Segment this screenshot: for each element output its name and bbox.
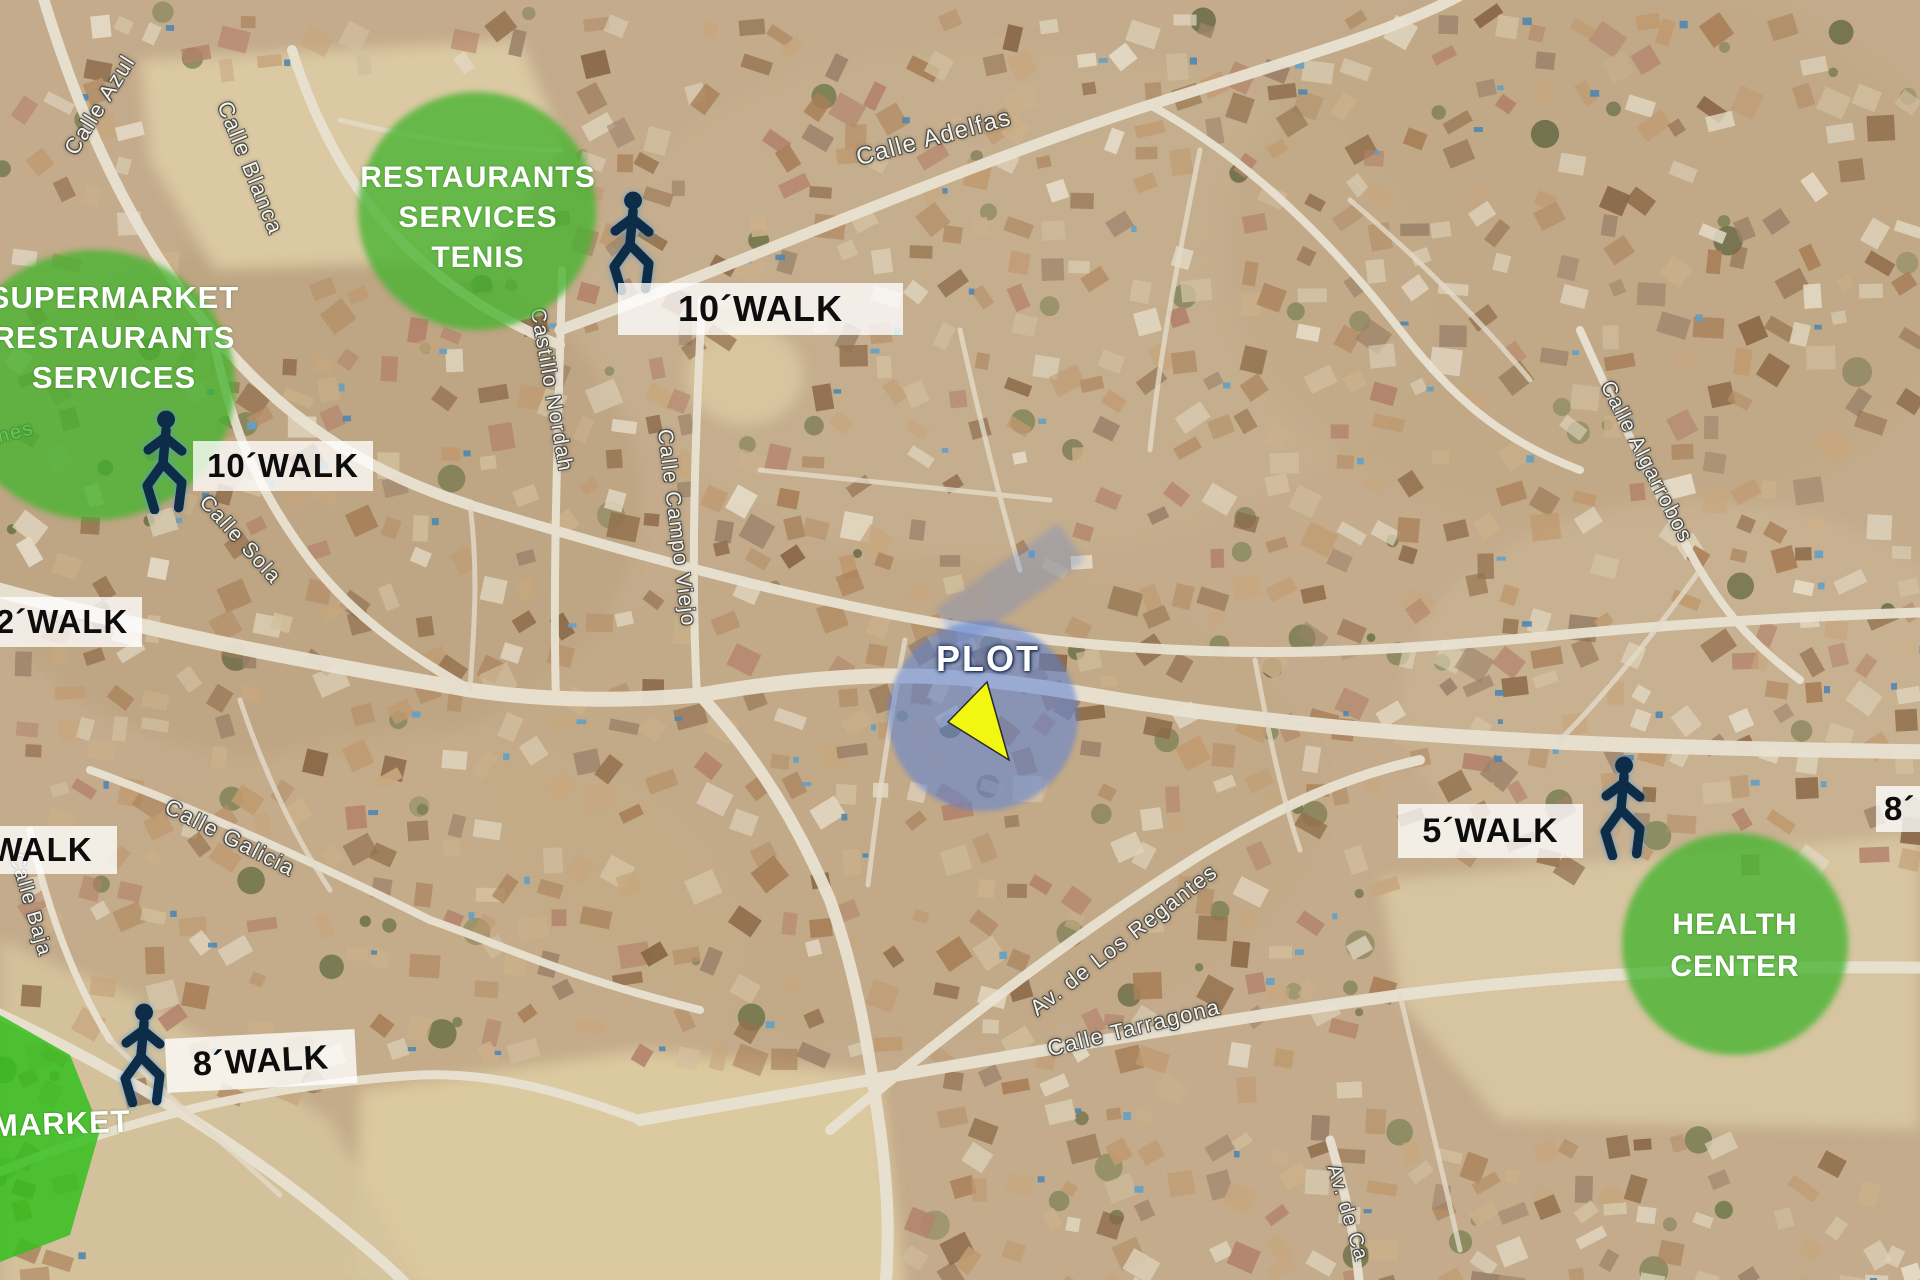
plot-label: PLOT bbox=[918, 638, 1058, 680]
satellite-map: Calle Azul Calle Blanca Calle Adelfas Ca… bbox=[0, 0, 1920, 1280]
walk-time-badge-right-edge: 8´ bbox=[1876, 786, 1920, 832]
walk-time-badge-left-edge-lower: ´WALK bbox=[0, 826, 117, 874]
walk-time-badge-left-edge-upper: 2´WALK bbox=[0, 597, 142, 647]
health-center-zone-label: HEALTH CENTER bbox=[1625, 904, 1845, 988]
market-label: MARKET bbox=[0, 1104, 131, 1145]
walk-time-badge-top: 10´WALK bbox=[618, 283, 903, 335]
supermarket-services-zone-label: SUPERMARKET RESTAURANTS SERVICES bbox=[0, 278, 240, 398]
walk-time-badge-left: 10´WALK bbox=[193, 441, 373, 491]
walk-time-badge-right: 5´WALK bbox=[1398, 804, 1583, 858]
restaurants-tenis-zone-label: RESTAURANTS SERVICES TENIS bbox=[348, 158, 608, 278]
walk-time-badge-bottom-left: 8´WALK bbox=[165, 1029, 358, 1093]
